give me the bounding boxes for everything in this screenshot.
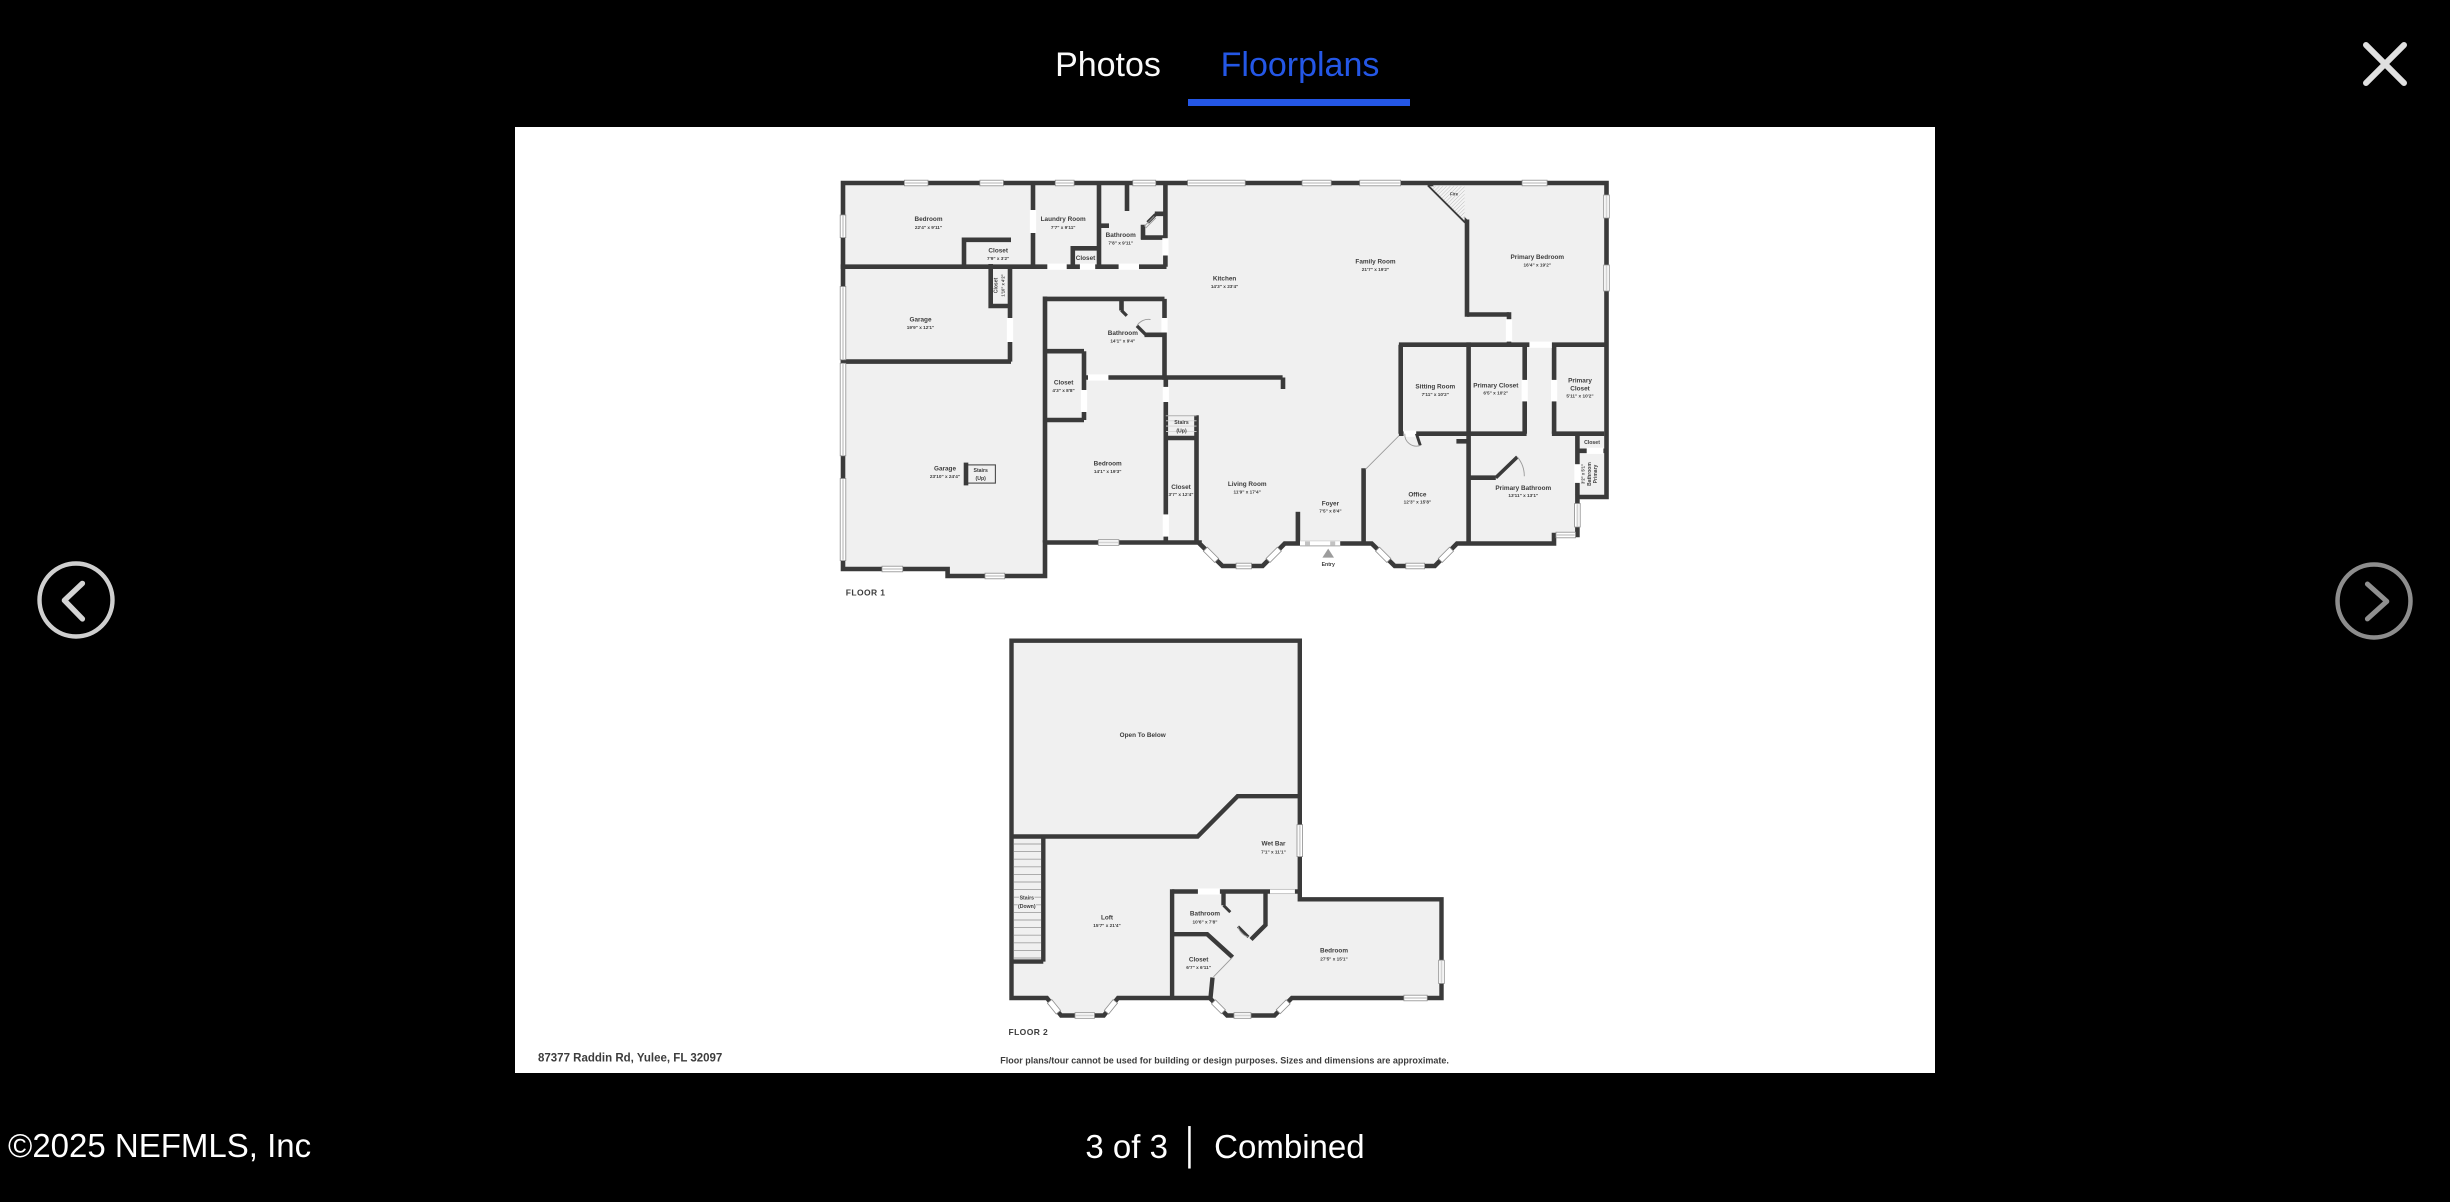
svg-text:Primary Bedroom: Primary Bedroom bbox=[1510, 254, 1564, 261]
svg-text:Closet: Closet bbox=[1584, 440, 1600, 446]
svg-text:Bathroom: Bathroom bbox=[1587, 462, 1593, 486]
svg-text:Primary: Primary bbox=[1568, 378, 1592, 385]
svg-text:16'4" x 19'2": 16'4" x 19'2" bbox=[1524, 262, 1552, 267]
svg-text:Closet: Closet bbox=[1189, 957, 1209, 964]
svg-text:87377 Raddin Rd, Yulee, FL 320: 87377 Raddin Rd, Yulee, FL 32097 bbox=[538, 1053, 722, 1065]
svg-text:Entry: Entry bbox=[1322, 562, 1335, 568]
svg-text:Primary Bathroom: Primary Bathroom bbox=[1495, 485, 1551, 492]
svg-text:Laundry Room: Laundry Room bbox=[1041, 216, 1086, 223]
svg-text:Living Room: Living Room bbox=[1228, 481, 1267, 488]
svg-text:12'3" x 15'8": 12'3" x 15'8" bbox=[1404, 500, 1432, 505]
svg-text:Wet Bar: Wet Bar bbox=[1261, 841, 1286, 848]
svg-text:Stairs: Stairs bbox=[1174, 420, 1189, 426]
svg-text:Family Room: Family Room bbox=[1355, 258, 1395, 265]
svg-text:Bedroom: Bedroom bbox=[1320, 948, 1348, 955]
svg-text:Bathroom: Bathroom bbox=[1106, 232, 1136, 239]
svg-text:Garage: Garage bbox=[909, 316, 931, 323]
svg-text:Bedroom: Bedroom bbox=[1094, 460, 1122, 467]
svg-text:Fire: Fire bbox=[1450, 192, 1459, 197]
svg-text:15'7" x 21'4": 15'7" x 21'4" bbox=[1093, 923, 1121, 928]
svg-text:(Up): (Up) bbox=[976, 476, 987, 482]
svg-text:7'7" x 9'11": 7'7" x 9'11" bbox=[1051, 225, 1076, 230]
svg-text:1'10" x 4'2": 1'10" x 4'2" bbox=[1001, 274, 1006, 296]
svg-text:7'8" x 9'11": 7'8" x 9'11" bbox=[1108, 241, 1133, 246]
svg-text:Closet: Closet bbox=[1054, 380, 1074, 387]
svg-text:Sitting Room: Sitting Room bbox=[1415, 383, 1455, 390]
svg-text:Primary: Primary bbox=[1593, 464, 1599, 483]
svg-text:FLOOR 1: FLOOR 1 bbox=[846, 588, 886, 598]
svg-text:Closet: Closet bbox=[1171, 484, 1191, 491]
svg-text:27'5" x 15'1": 27'5" x 15'1" bbox=[1320, 957, 1348, 962]
svg-text:Closet: Closet bbox=[1570, 385, 1590, 392]
svg-text:Kitchen: Kitchen bbox=[1213, 276, 1237, 283]
svg-text:Primary Closet: Primary Closet bbox=[1473, 382, 1519, 389]
svg-text:13'11" x 13'1": 13'11" x 13'1" bbox=[1508, 493, 1538, 498]
svg-text:14'1" x 19'3": 14'1" x 19'3" bbox=[1094, 469, 1122, 474]
svg-text:Closet: Closet bbox=[994, 278, 1000, 294]
svg-text:Foyer: Foyer bbox=[1322, 500, 1340, 507]
svg-text:Stairs: Stairs bbox=[1020, 896, 1035, 902]
svg-text:Office: Office bbox=[1408, 492, 1427, 499]
svg-text:7'5" x 8'4": 7'5" x 8'4" bbox=[1319, 509, 1341, 514]
svg-text:6'7" x 6'11": 6'7" x 6'11" bbox=[1186, 965, 1211, 970]
svg-text:Closet: Closet bbox=[1076, 255, 1096, 262]
svg-text:10'6" x 7'8": 10'6" x 7'8" bbox=[1193, 920, 1218, 925]
svg-text:22'4" x 9'11": 22'4" x 9'11" bbox=[915, 225, 942, 230]
svg-text:19'9" x 12'1": 19'9" x 12'1" bbox=[907, 325, 935, 330]
svg-text:Garage: Garage bbox=[934, 466, 956, 473]
svg-text:Open To Below: Open To Below bbox=[1120, 732, 1166, 739]
svg-text:(Down): (Down) bbox=[1018, 904, 1036, 910]
svg-text:11'9" x 17'4": 11'9" x 17'4" bbox=[1234, 490, 1261, 495]
svg-text:3'7" x 12'4": 3'7" x 12'4" bbox=[1169, 492, 1194, 497]
svg-text:Bathroom: Bathroom bbox=[1108, 330, 1138, 337]
svg-text:21'7" x 19'2": 21'7" x 19'2" bbox=[1362, 267, 1390, 272]
svg-text:7'11" x 10'2": 7'11" x 10'2" bbox=[1422, 392, 1449, 397]
svg-text:7'1" x 11'1": 7'1" x 11'1" bbox=[1261, 849, 1286, 854]
svg-text:6'5" x 10'2": 6'5" x 10'2" bbox=[1483, 391, 1508, 396]
svg-text:14'3" x 23'4": 14'3" x 23'4" bbox=[1211, 284, 1239, 289]
svg-text:Bathroom: Bathroom bbox=[1190, 910, 1220, 917]
svg-text:Floor plans/tour cannot be use: Floor plans/tour cannot be used for buil… bbox=[1000, 1056, 1449, 1066]
svg-text:Bedroom: Bedroom bbox=[914, 216, 942, 223]
svg-text:Loft: Loft bbox=[1101, 914, 1114, 921]
svg-text:4'3" x 8'8": 4'3" x 8'8" bbox=[1052, 388, 1074, 393]
svg-text:23'10" x 24'4": 23'10" x 24'4" bbox=[930, 474, 960, 479]
svg-text:3'2" x 5'1": 3'2" x 5'1" bbox=[1581, 464, 1586, 484]
svg-text:(Up): (Up) bbox=[1176, 429, 1187, 435]
svg-text:Closet: Closet bbox=[988, 248, 1008, 255]
svg-text:5'11" x 10'2": 5'11" x 10'2" bbox=[1566, 394, 1593, 399]
svg-text:14'1" x 9'4": 14'1" x 9'4" bbox=[1110, 338, 1135, 343]
svg-text:Stairs: Stairs bbox=[973, 468, 988, 474]
svg-text:FLOOR 2: FLOOR 2 bbox=[1009, 1027, 1049, 1037]
svg-text:7'9" x 3'2": 7'9" x 3'2" bbox=[987, 256, 1009, 261]
